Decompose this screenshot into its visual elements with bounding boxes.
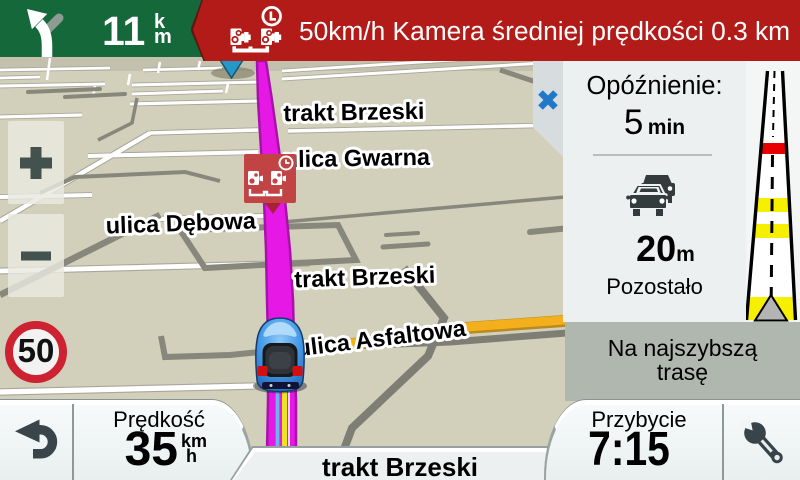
svg-text:trakt Brzeski: trakt Brzeski [294,262,436,293]
svg-text:ulica Dębowa: ulica Dębowa [105,207,257,238]
svg-text:ulica Gwarna: ulica Gwarna [284,144,432,173]
svg-text:trakt Brzeski: trakt Brzeski [283,98,425,126]
